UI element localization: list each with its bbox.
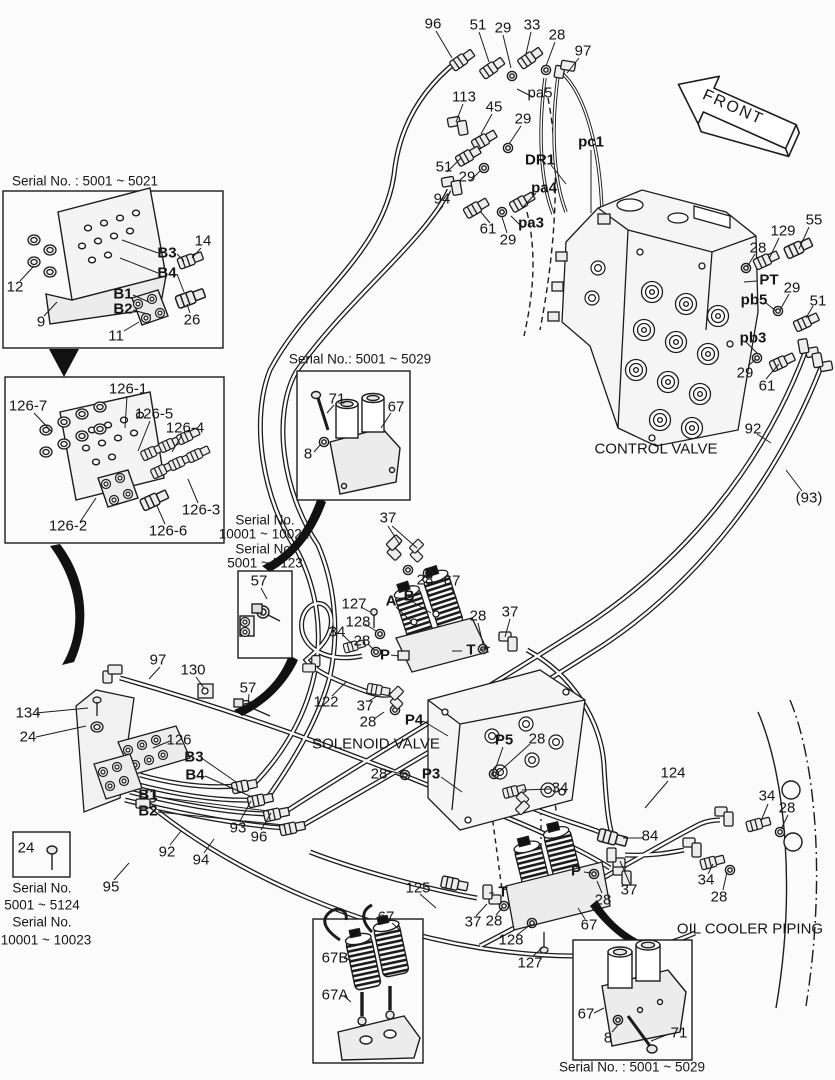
diagram-artwork [0,0,835,1080]
detail-box-bolt-24 [13,832,70,877]
detail-box-solenoid-67 [313,905,423,1063]
detail-box-sensor-57 [238,571,292,658]
detail-box-solenoid-top [297,371,410,500]
oil-cooler-fittings [597,807,785,875]
solenoid-valve-upper [343,535,517,672]
control-valve-block [548,190,758,446]
detail-box-solenoid-bottom-right [573,940,692,1060]
detail-box-bracket-2 [5,377,224,543]
detail-box-bracket-1 [3,188,223,348]
front-direction-arrow [665,62,807,168]
parts-diagram: 965129332897pa51134529DR1pc15129pa49461p… [0,0,835,1080]
